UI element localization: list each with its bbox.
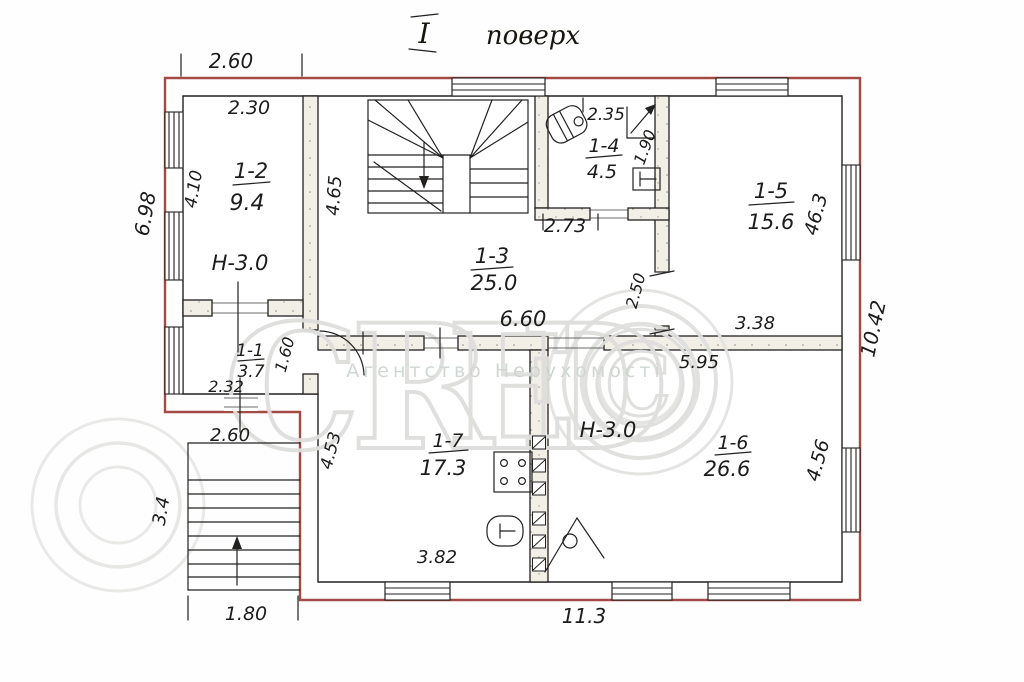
room-area: 26.6 [704, 457, 751, 481]
floor-plan-page: C R E D © Агентство Нерухомості [0, 0, 1024, 682]
plan-title: І поверх [409, 14, 580, 52]
door-opening-porch [224, 395, 258, 411]
title-roman-numeral: І [417, 17, 430, 50]
window-left-1 [165, 112, 183, 168]
watermark-copyright-icon: © [565, 298, 715, 474]
dim-label: 2.30 [228, 97, 270, 119]
window-right-1 [842, 165, 860, 260]
ceiling-height: Н-3.0 [580, 418, 637, 442]
wall-r12-r11-left [183, 300, 212, 316]
dim-label: 2.35 [587, 105, 625, 125]
window-bottom-1 [385, 582, 450, 600]
room-number: 1-2 [234, 159, 268, 183]
room-area: 15.6 [748, 210, 795, 234]
dim-label: 2.73 [544, 215, 586, 237]
dim-label: 2.32 [208, 377, 244, 396]
dim-label: 4.65 [323, 175, 347, 216]
dim-label: 3.82 [417, 547, 457, 568]
room-number: 1-4 [588, 135, 619, 157]
room-number: 1-6 [717, 432, 748, 454]
window-left-3 [165, 327, 183, 394]
dim-label: 1.80 [225, 603, 267, 625]
window-bottom-3 [708, 582, 790, 600]
room-area: 17.3 [420, 456, 467, 480]
dim-label: 3.4 [149, 495, 175, 527]
dim-label: 6.98 [129, 190, 160, 238]
room-number: 1-1 [236, 341, 264, 361]
dim-label: 3.38 [735, 313, 775, 334]
window-top-1 [452, 78, 545, 96]
room-number: 1-3 [475, 244, 509, 268]
dim-label: 2.60 [210, 425, 250, 446]
wall-r14-left [535, 96, 548, 208]
wall-r13-r15-upper [655, 96, 669, 272]
wall-r14-bottom-b [628, 208, 669, 220]
room-area: 9.4 [230, 191, 265, 216]
dim-label: 11.3 [562, 604, 607, 628]
window-right-2 [842, 448, 860, 532]
dim-label: 2.60 [209, 49, 254, 73]
ceiling-height: Н-3.0 [212, 251, 269, 275]
window-bottom-2 [612, 582, 672, 600]
room-area: 25.0 [471, 271, 518, 295]
watermark-letter: C [224, 286, 361, 489]
dim-label: 6.60 [500, 307, 547, 331]
dim-label: 5.95 [679, 352, 719, 373]
title-text: поверх [486, 21, 581, 51]
window-left-2 [165, 212, 183, 280]
window-top-2 [716, 78, 788, 96]
watermark-subtitle: Агентство Нерухомості [346, 360, 663, 382]
room-number: 1-7 [432, 430, 463, 452]
room-area: 4.5 [587, 161, 617, 183]
floor-plan-drawing: C R E D © Агентство Нерухомості [0, 0, 1024, 682]
room-number: 1-5 [754, 179, 788, 203]
